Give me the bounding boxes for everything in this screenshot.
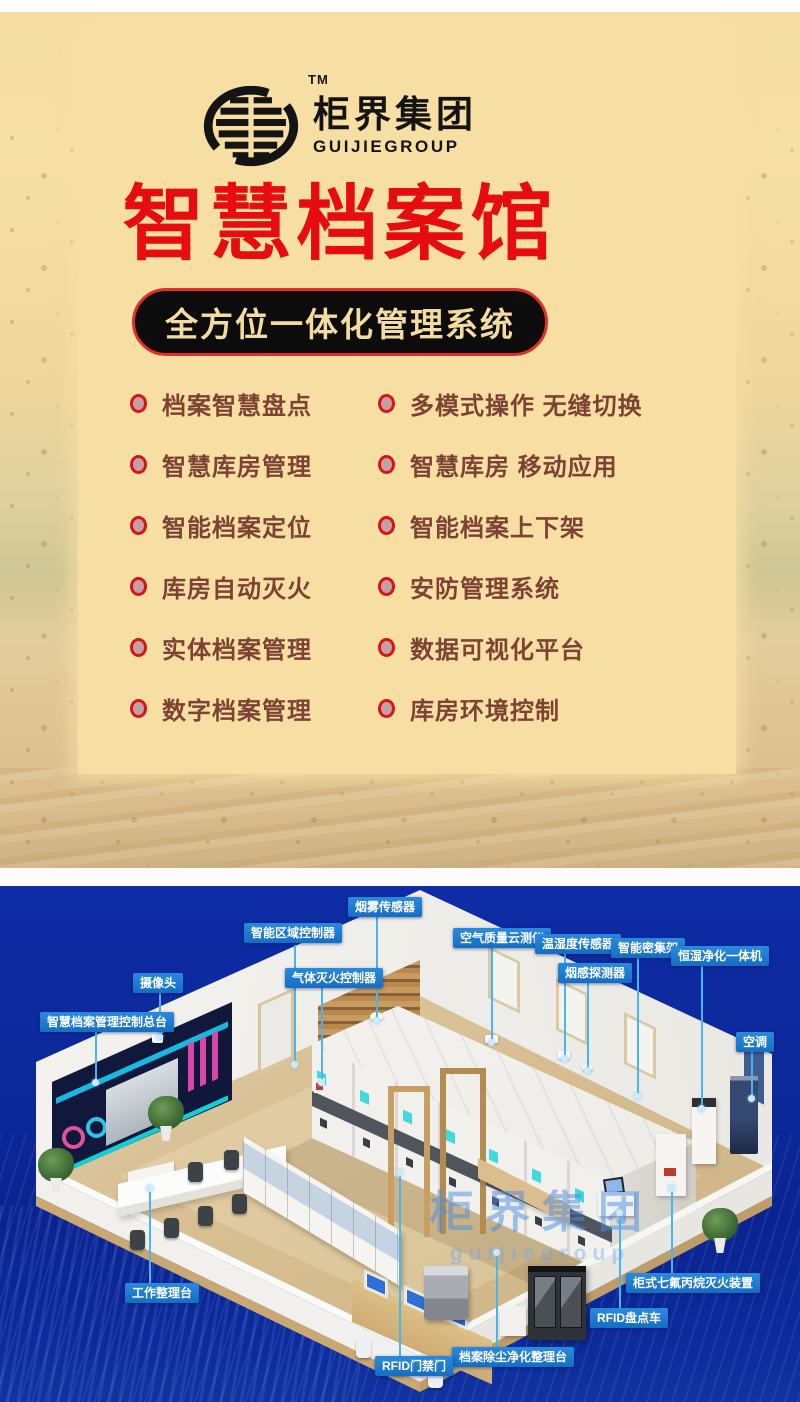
feature-label: 数字档案管理: [162, 691, 312, 726]
callout-label: 工作整理台: [125, 1283, 199, 1303]
callout-label: RFID盘点车: [590, 1308, 668, 1328]
callout-leader-line: [701, 964, 703, 1108]
callout-label: 档案除尘净化整理台: [452, 1347, 574, 1367]
callout-anchor-dot: [92, 1079, 99, 1086]
bullet-icon: [378, 699, 395, 718]
poster: 柜界集团 GUIJIEGROUP TM 智慧档案馆 全方位一体化管理系统 档案智…: [0, 0, 800, 1402]
brand-name: 柜界集团: [313, 96, 477, 135]
feature-item: 安防管理系统: [378, 573, 643, 599]
callout-label: RFID门禁门: [375, 1356, 453, 1376]
callout-anchor-dot: [146, 1185, 153, 1192]
bullet-icon: [130, 455, 147, 474]
feature-label: 库房自动灭火: [162, 569, 312, 604]
feature-label: 智能档案上下架: [410, 508, 585, 543]
callout-label: 恒湿净化一体机: [671, 946, 769, 966]
feature-label: 档案智慧盘点: [162, 386, 312, 421]
callout-leader-line: [587, 981, 589, 1070]
brand-logo: 柜界集团 GUIJIEGROUP: [0, 84, 680, 168]
callout-leader-line: [751, 1050, 753, 1098]
bullet-icon: [378, 455, 395, 474]
feature-item: 库房环境控制: [378, 695, 643, 721]
callout-leader-line: [491, 948, 493, 1042]
feature-item: 数字档案管理: [130, 695, 378, 721]
callout-leader-line: [637, 956, 639, 1096]
feature-item: 库房自动灭火: [130, 573, 378, 599]
sand-ripples: [0, 768, 800, 868]
trademark-mark: TM: [308, 72, 329, 87]
top-section: 柜界集团 GUIJIEGROUP TM 智慧档案馆 全方位一体化管理系统 档案智…: [0, 0, 800, 868]
hero-block: 柜界集团 GUIJIEGROUP TM 智慧档案馆 全方位一体化管理系统: [0, 0, 680, 400]
feature-column-right: 多模式操作 无缝切换智慧库房 移动应用智能档案上下架安防管理系统数据可视化平台库…: [378, 390, 643, 756]
callout-leader-line: [671, 1188, 673, 1273]
bullet-icon: [130, 577, 147, 596]
callout-anchor-dot: [396, 1169, 403, 1176]
feature-label: 实体档案管理: [162, 630, 312, 665]
feature-item: 数据可视化平台: [378, 634, 643, 660]
callout-anchor-dot: [584, 1067, 591, 1074]
feature-label: 多模式操作 无缝切换: [410, 386, 643, 421]
bullet-icon: [130, 394, 147, 413]
callout-leader-line: [619, 1212, 621, 1308]
feature-label: 智能档案定位: [162, 508, 312, 543]
callout-label: 气体灭火控制器: [285, 968, 383, 988]
callout-leader-line: [496, 1252, 498, 1347]
bullet-icon: [130, 516, 147, 535]
feature-label: 安防管理系统: [410, 569, 560, 604]
callout-anchor-dot: [318, 1079, 325, 1086]
brand-name-block: 柜界集团 GUIJIEGROUP: [313, 96, 477, 156]
callout-layer: 烟雾传感器智能区域控制器空气质量云测仪温湿度传感器智能密集架恒湿净化一体机烟感探…: [0, 886, 800, 1402]
feature-item: 智慧库房管理: [130, 451, 378, 477]
callout-label: 温湿度传感器: [535, 934, 621, 954]
callout-label: 摄像头: [133, 973, 183, 993]
feature-column-left: 档案智慧盘点智慧库房管理智能档案定位库房自动灭火实体档案管理数字档案管理: [130, 390, 378, 756]
callout-leader-line: [95, 1030, 97, 1082]
callout-anchor-dot: [156, 1033, 163, 1040]
bullet-icon: [378, 516, 395, 535]
callout-anchor-dot: [616, 1209, 623, 1216]
callout-anchor-dot: [748, 1095, 755, 1102]
bullet-icon: [378, 638, 395, 657]
feature-item: 智慧库房 移动应用: [378, 451, 643, 477]
feature-label: 库房环境控制: [410, 691, 560, 726]
bullet-icon: [378, 394, 395, 413]
bullet-icon: [130, 638, 147, 657]
callout-anchor-dot: [634, 1093, 641, 1100]
callout-label: 智能区域控制器: [244, 923, 342, 943]
bullet-icon: [130, 699, 147, 718]
feature-item: 智能档案上下架: [378, 512, 643, 538]
section-divider: [0, 868, 800, 886]
callout-anchor-dot: [291, 1061, 298, 1068]
feature-item: 多模式操作 无缝切换: [378, 390, 643, 416]
callout-label: 烟感探测器: [558, 963, 632, 983]
callout-label: 柜式七氟丙烷灭火装置: [626, 1273, 760, 1293]
callout-label: 空调: [736, 1032, 774, 1052]
callout-leader-line: [321, 986, 323, 1082]
feature-label: 智慧库房 移动应用: [410, 447, 618, 482]
callout-anchor-dot: [561, 1055, 568, 1062]
callout-leader-line: [399, 1172, 401, 1356]
cabinet-logo-icon: [203, 84, 299, 168]
bullet-icon: [378, 577, 395, 596]
callout-anchor-dot: [373, 1017, 380, 1024]
subtitle-pill: 全方位一体化管理系统: [132, 288, 548, 356]
feature-item: 实体档案管理: [130, 634, 378, 660]
callout-leader-line: [149, 1188, 151, 1283]
feature-label: 智慧库房管理: [162, 447, 312, 482]
callout-anchor-dot: [698, 1105, 705, 1112]
diagram-section: 柜界集团 guijiegroup 烟雾传感器智能区域控制器空气质量云测仪温湿度传…: [0, 886, 800, 1402]
feature-item: 档案智慧盘点: [130, 390, 378, 416]
feature-item: 智能档案定位: [130, 512, 378, 538]
callout-label: 智慧档案管理控制总台: [40, 1012, 174, 1032]
page-title: 智慧档案馆: [0, 184, 680, 266]
feature-list: 档案智慧盘点智慧库房管理智能档案定位库房自动灭火实体档案管理数字档案管理 多模式…: [130, 390, 690, 756]
brand-name-en: GUIJIEGROUP: [313, 138, 460, 156]
callout-anchor-dot: [493, 1249, 500, 1256]
feature-label: 数据可视化平台: [410, 630, 585, 665]
callout-label: 烟雾传感器: [348, 897, 422, 917]
callout-leader-line: [294, 945, 296, 1064]
callout-anchor-dot: [668, 1185, 675, 1192]
callout-anchor-dot: [488, 1039, 495, 1046]
